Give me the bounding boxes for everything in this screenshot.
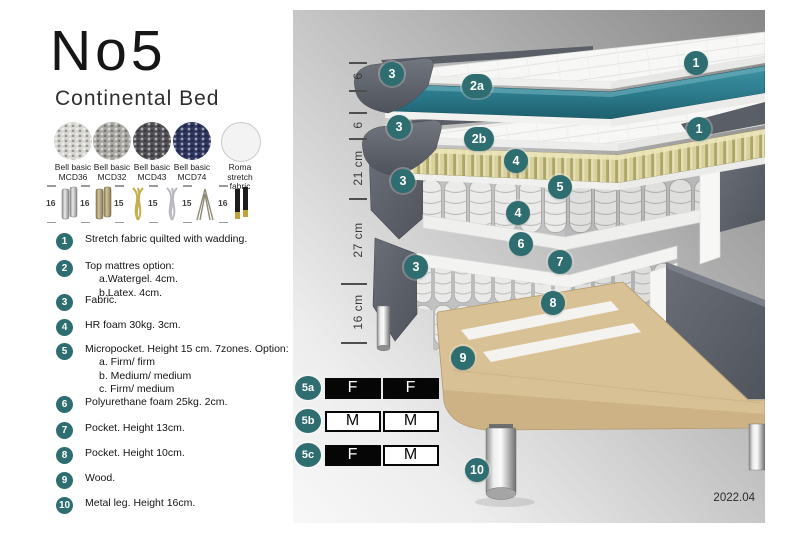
fabric-swatch-roma xyxy=(221,122,261,162)
callout-6: 6 xyxy=(509,232,533,256)
bed-cutaway-diagram: 6 6 21 cm 27 cm 16 cm 1 3 2a 1 3 2b 4 5 … xyxy=(293,10,765,523)
list-item: 7 Pocket. Height 13cm. xyxy=(56,422,295,439)
callout-9: 9 xyxy=(451,346,475,370)
fabric-swatch-mcd74 xyxy=(173,122,211,160)
item-number-badge: 2 xyxy=(56,260,73,277)
leg-option-black-gold: 16 xyxy=(218,184,252,224)
list-item: 6 Polyurethane foam 25kg. 2cm. xyxy=(56,396,295,413)
ruler-label: 27 cm xyxy=(351,210,365,270)
version-date: 2022.04 xyxy=(713,492,755,504)
firmness-badge: 5c xyxy=(295,443,321,467)
fabric-swatch-mcd36 xyxy=(54,122,92,160)
leg-option-gold-twist: 15 xyxy=(114,184,148,224)
fabric-swatch-mcd43 xyxy=(133,122,171,160)
list-item: 8 Pocket. Height 10cm. xyxy=(56,447,295,464)
firmness-cell: M xyxy=(383,411,439,432)
leg-option-chrome: 16 xyxy=(46,184,80,224)
wood-leg-icon xyxy=(95,186,114,222)
leg-option-silver-twist: 15 xyxy=(148,184,182,224)
list-item: 4 HR foam 30kg. 3cm. xyxy=(56,319,295,336)
callout-1-top: 1 xyxy=(684,51,708,75)
callout-8: 8 xyxy=(541,291,565,315)
chrome-leg-icon xyxy=(61,186,80,222)
firmness-cell: M xyxy=(383,445,439,466)
item-number-badge: 3 xyxy=(56,294,73,311)
callout-2b: 2b xyxy=(464,127,494,151)
list-item: 5 Micropocket. Height 15 cm. 7zones. Opt… xyxy=(56,343,295,397)
item-number-badge: 4 xyxy=(56,319,73,336)
callout-10: 10 xyxy=(465,458,489,482)
hairpin-leg-icon xyxy=(194,186,216,222)
list-item: 3 Fabric. xyxy=(56,294,295,311)
item-number-badge: 7 xyxy=(56,422,73,439)
callout-7: 7 xyxy=(548,250,572,274)
item-number-badge: 8 xyxy=(56,447,73,464)
firmness-cell: F xyxy=(325,445,381,466)
firmness-cell: F xyxy=(325,378,381,399)
item-number-badge: 10 xyxy=(56,497,73,514)
firmness-row-5c: 5c F M xyxy=(295,443,439,467)
callout-3-top: 3 xyxy=(380,62,404,86)
leg-option-hairpin: 15 xyxy=(182,184,216,224)
page-title: No5 xyxy=(50,18,167,84)
callout-4-upper: 4 xyxy=(504,149,528,173)
ruler-tick xyxy=(341,342,367,344)
firmness-cell: F xyxy=(383,378,439,399)
callout-4-lower: 4 xyxy=(506,201,530,225)
firmness-cell: M xyxy=(325,411,381,432)
fabric-swatch-mcd32 xyxy=(93,122,131,160)
leg-option-wood: 16 xyxy=(80,184,114,224)
ruler-label: 16 cm xyxy=(351,282,365,342)
firmness-badge: 5b xyxy=(295,409,321,433)
item-number-badge: 1 xyxy=(56,233,73,250)
item-number-badge: 6 xyxy=(56,396,73,413)
callout-3-fourth: 3 xyxy=(404,255,428,279)
black-gold-leg-icon xyxy=(233,186,252,222)
list-item: 10 Metal leg. Height 16cm. xyxy=(56,497,295,514)
firmness-row-5a: 5a F F xyxy=(295,376,439,400)
item-number-badge: 5 xyxy=(56,343,73,360)
callout-3-second: 3 xyxy=(387,115,411,139)
swatch-label: Bell basicMCD74 xyxy=(168,163,216,182)
callout-3-third: 3 xyxy=(391,169,415,193)
callout-5: 5 xyxy=(548,175,572,199)
ruler-label: 21 cm xyxy=(351,138,365,198)
firmness-badge: 5a xyxy=(295,376,321,400)
item-number-badge: 9 xyxy=(56,472,73,489)
list-item: 9 Wood. xyxy=(56,472,295,489)
gold-twist-leg-icon xyxy=(129,186,148,222)
silver-twist-leg-icon xyxy=(163,186,182,222)
page-subtitle: Continental Bed xyxy=(55,87,219,111)
ruler-tick xyxy=(349,198,367,200)
firmness-row-5b: 5b M M xyxy=(295,409,439,433)
callout-1-mid: 1 xyxy=(687,117,711,141)
list-item: 1 Stretch fabric quilted with wadding. xyxy=(56,233,295,250)
callout-2a: 2a xyxy=(462,74,492,98)
